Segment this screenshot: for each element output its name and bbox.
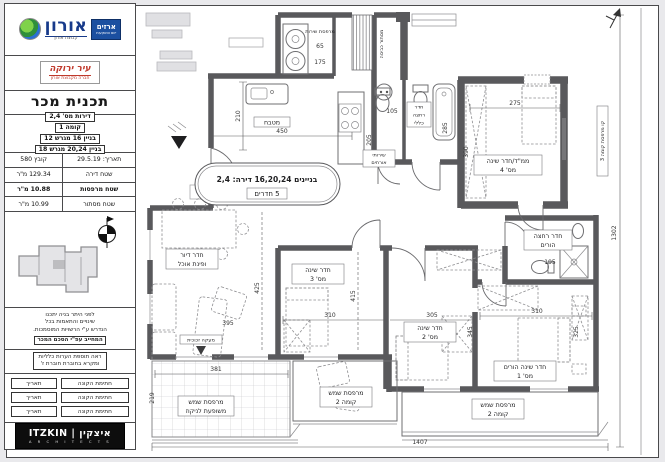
dim-value: 450 [276,128,288,135]
room-label-balcony-right: מרפסת שמש [480,402,515,409]
dim-total-height: 1302 [611,225,618,240]
plan-sheet-page: ארזים יזום והשקעות אורון קבוצת אורון עיר… [0,0,665,462]
room-label-living: חדר דיור [180,252,203,259]
entry-arrow [168,122,187,149]
rooms-count-label: 5 חדרים [254,190,279,198]
dim-value: 325 [573,326,580,338]
dim-value: 219 [149,392,156,404]
room-label-bed1: חדר שינה הורים [504,364,547,371]
dim-value: 275 [509,100,521,107]
dim-value: 195 [544,259,556,266]
dim-value: 345 [467,326,474,338]
dim-value: 390 [463,146,470,158]
dim-value: 205 [366,134,373,146]
dim-value: 210 [235,110,242,122]
room-label-mamad: ממ"ד/חדר שינה [487,158,530,165]
dim-value: 285 [442,122,449,134]
north-arrow-icon [606,8,621,28]
dim-value: 310 [531,308,543,315]
dim-value: 395 [222,320,234,327]
dim-value: 310 [324,312,336,319]
dim-value: 65 [316,43,324,50]
room-label-bath: כללי [414,121,424,127]
room-label-bed3: מס' 3 [310,276,326,283]
room-label-balcony-mid: מרפסת שמש [328,390,363,397]
room-label-balcony-left: משופעת לניקוז [186,408,226,415]
room-label-parents-bath: הורים [541,242,556,249]
room-label-balcony-right: קומה 2 [488,411,509,418]
room-label-living: ופינת אוכל [178,261,207,268]
room-label-bath: חדר [415,105,424,111]
unit-label: בניינים 16,20,24 דירה: 2,4 [217,175,318,184]
room-label-parents-bath: חדר רחצה [534,233,563,240]
room-label-balcony-left: מרפסת שמש [188,399,223,406]
room-label-bed1: מס' 1 [517,373,533,380]
dim-value: 105 [386,108,398,115]
room-label-bed3: חדר שינה [305,267,331,274]
room-label-bed2: חדר שינה [417,325,443,332]
room-label-mamad: מס' 4 [500,167,516,174]
dim-value: 175 [314,59,326,66]
dim-total-width: 1407 [412,439,427,446]
room-label-kitchen: מטבח [264,120,280,127]
unit-oval-label: בניינים 16,20,24 דירה: 2,4 5 חדרים [195,163,340,205]
room-label-guest-wc: אורחים [371,160,386,166]
dim-value: 415 [350,290,357,302]
laundry-screen-label: מסתור כביסה [379,30,385,59]
dim-value: 305 [426,312,438,319]
room-label-balcony-mid: קומה 2 [336,399,357,406]
room-label-service-balcony: מרפסת שירות [305,29,335,35]
balcony-line-label: קו מרפסת קומה 3 [600,120,606,161]
dim-value: 425 [254,282,261,294]
room-label-bath: רחצה [413,113,425,119]
room-label-bed2: מס' 2 [422,334,438,341]
laundry-screen-hatch [352,15,372,70]
dim-value: 381 [210,366,222,373]
floor-plan-drawing: 450 210 65 175 105 205 158 285 275 390 1… [0,0,665,462]
railing-note: מעקה זכוכית [187,338,215,344]
room-label-guest-wc: שירותי [372,153,386,159]
